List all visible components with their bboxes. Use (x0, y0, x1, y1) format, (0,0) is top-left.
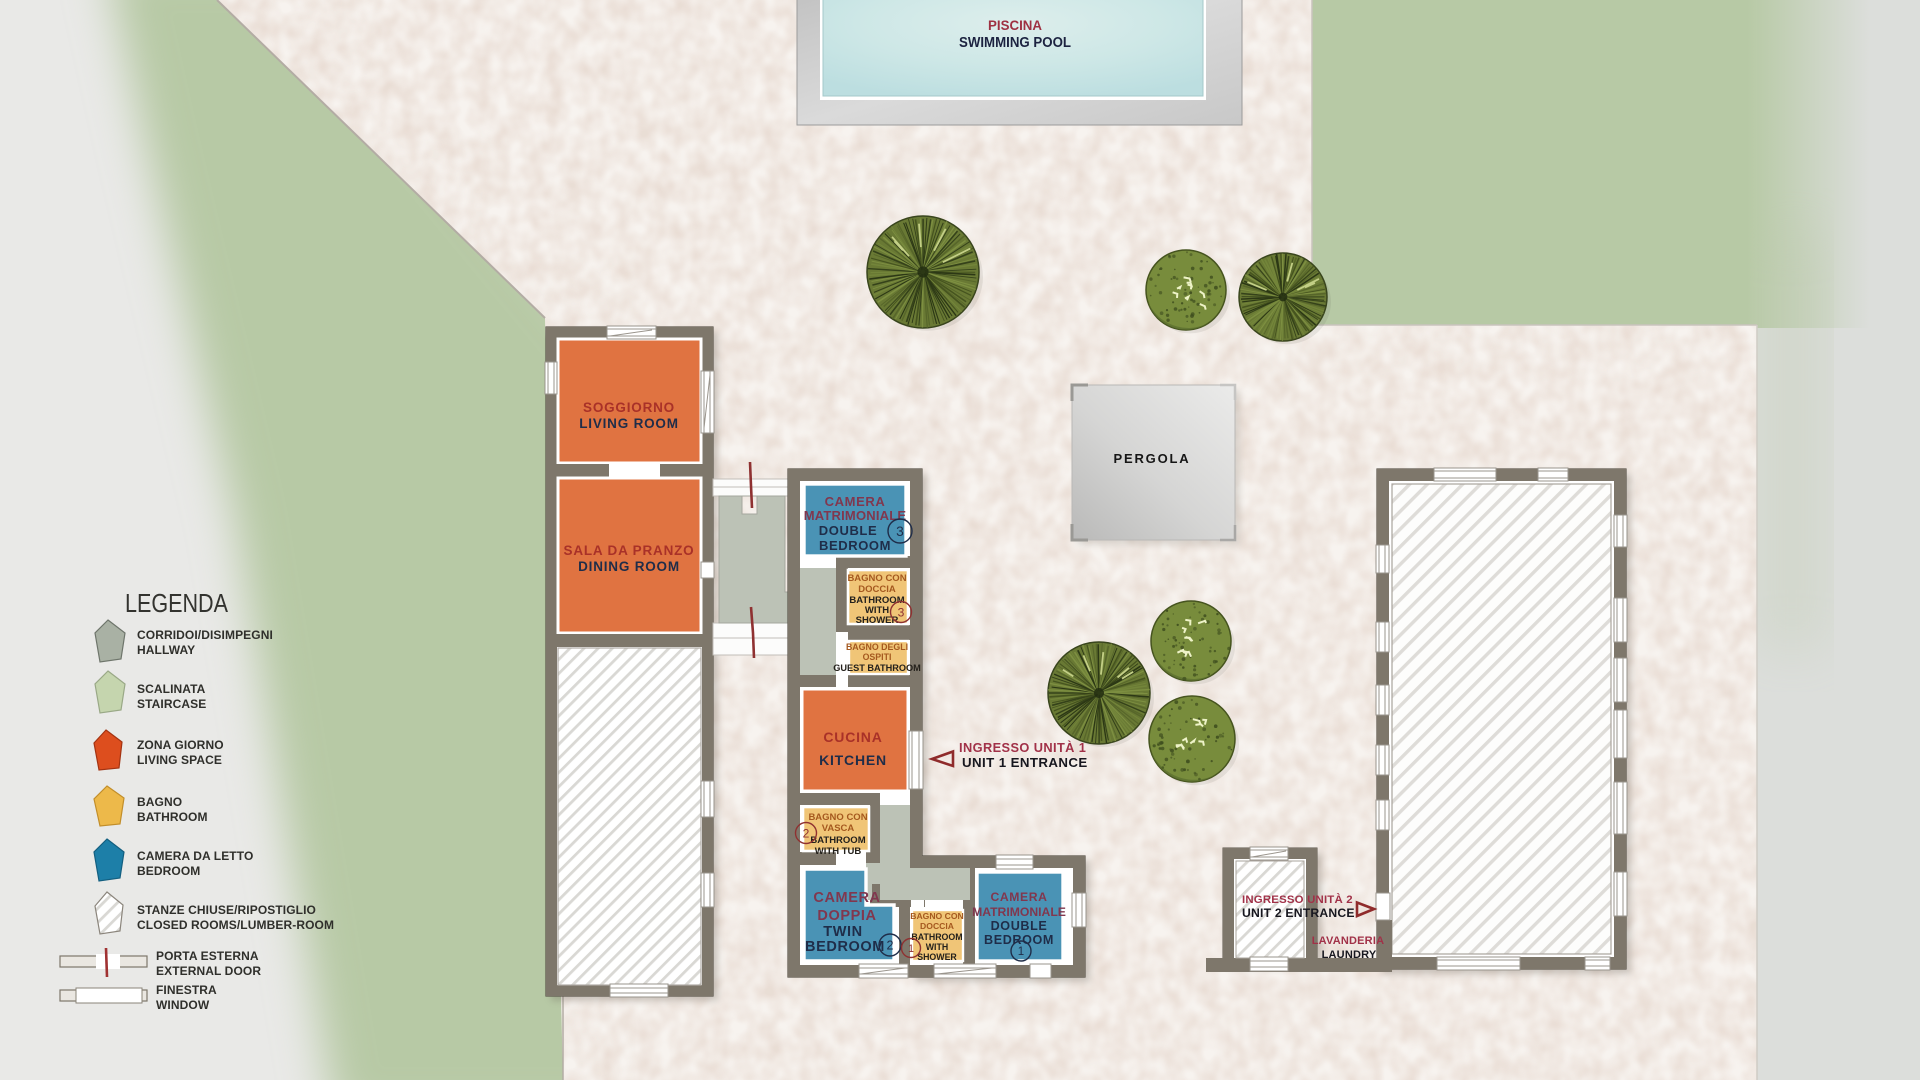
svg-text:HALLWAY: HALLWAY (137, 643, 195, 657)
svg-text:LAUNDRY: LAUNDRY (1322, 949, 1377, 961)
svg-text:CAMERA: CAMERA (813, 890, 880, 906)
svg-text:DOCCIA: DOCCIA (920, 921, 954, 931)
svg-text:KITCHEN: KITCHEN (819, 752, 887, 768)
svg-text:WINDOW: WINDOW (156, 998, 210, 1012)
svg-text:3: 3 (896, 524, 904, 539)
svg-text:BAGNO CON: BAGNO CON (910, 911, 963, 921)
svg-text:STAIRCASE: STAIRCASE (137, 697, 206, 711)
svg-text:GUEST BATHROOM: GUEST BATHROOM (833, 663, 921, 673)
svg-text:BEDROOM: BEDROOM (819, 538, 891, 553)
svg-text:DOPPIA: DOPPIA (817, 908, 876, 924)
svg-text:1: 1 (908, 943, 914, 955)
svg-text:TWIN: TWIN (823, 924, 862, 940)
svg-text:CAMERA: CAMERA (990, 890, 1047, 904)
svg-text:LIVING SPACE: LIVING SPACE (137, 753, 222, 767)
svg-text:LAVANDERIA: LAVANDERIA (1312, 935, 1384, 947)
svg-text:CAMERA: CAMERA (825, 494, 886, 509)
svg-text:LIVING ROOM: LIVING ROOM (579, 416, 679, 431)
svg-text:MATRIMONIALE: MATRIMONIALE (972, 905, 1066, 919)
svg-text:BATHROOM: BATHROOM (137, 810, 208, 824)
svg-text:PISCINA: PISCINA (988, 18, 1042, 33)
svg-text:CORRIDOI/DISIMPEGNI: CORRIDOI/DISIMPEGNI (137, 628, 273, 642)
svg-text:BATHROOM: BATHROOM (810, 835, 865, 846)
svg-text:SCALINATA: SCALINATA (137, 682, 206, 696)
svg-text:DOUBLE: DOUBLE (991, 919, 1048, 933)
svg-text:BEDROOM: BEDROOM (984, 933, 1054, 947)
svg-text:SOGGIORNO: SOGGIORNO (583, 400, 675, 415)
svg-text:BAGNO: BAGNO (137, 795, 182, 809)
svg-text:BATHROOM: BATHROOM (911, 932, 962, 942)
svg-text:CUCINA: CUCINA (823, 729, 882, 745)
svg-text:INGRESSO UNITÀ 1: INGRESSO UNITÀ 1 (959, 740, 1086, 755)
svg-text:ZONA GIORNO: ZONA GIORNO (137, 738, 224, 752)
svg-text:PORTA ESTERNA: PORTA ESTERNA (156, 949, 259, 963)
svg-text:SALA DA PRANZO: SALA DA PRANZO (564, 543, 695, 558)
svg-text:INGRESSO UNITÀ 2: INGRESSO UNITÀ 2 (1242, 893, 1353, 906)
svg-text:2: 2 (803, 826, 810, 840)
svg-text:FINESTRA: FINESTRA (156, 983, 217, 997)
svg-text:UNIT 1 ENTRANCE: UNIT 1 ENTRANCE (962, 755, 1088, 770)
svg-text:2: 2 (886, 939, 893, 953)
svg-text:VASCA: VASCA (822, 823, 855, 834)
svg-text:DINING ROOM: DINING ROOM (578, 559, 680, 574)
svg-text:MATRIMONIALE: MATRIMONIALE (804, 508, 907, 523)
svg-text:BAGNO DEGLI: BAGNO DEGLI (846, 642, 908, 652)
svg-text:BAGNO CON: BAGNO CON (847, 573, 906, 584)
svg-text:EXTERNAL DOOR: EXTERNAL DOOR (156, 964, 261, 978)
svg-text:DOCCIA: DOCCIA (858, 584, 896, 595)
svg-text:BEDROOM: BEDROOM (805, 939, 885, 955)
svg-text:OSPITI: OSPITI (863, 652, 892, 662)
svg-text:1: 1 (1018, 946, 1024, 958)
svg-text:UNIT 2 ENTRANCE: UNIT 2 ENTRANCE (1242, 906, 1355, 920)
svg-text:SWIMMING POOL: SWIMMING POOL (959, 35, 1071, 51)
svg-text:CAMERA DA LETTO: CAMERA DA LETTO (137, 849, 253, 863)
svg-text:PERGOLA: PERGOLA (1114, 451, 1191, 466)
svg-text:CLOSED ROOMS/LUMBER-ROOM: CLOSED ROOMS/LUMBER-ROOM (137, 918, 334, 932)
svg-text:STANZE CHIUSE/RIPOSTIGLIO: STANZE CHIUSE/RIPOSTIGLIO (137, 903, 316, 917)
svg-text:LEGENDA: LEGENDA (125, 588, 229, 618)
svg-text:3: 3 (898, 605, 905, 619)
svg-text:DOUBLE: DOUBLE (819, 523, 878, 538)
svg-text:WITH: WITH (926, 942, 948, 952)
svg-text:WITH TUB: WITH TUB (815, 846, 862, 857)
svg-text:BEDROOM: BEDROOM (137, 864, 200, 878)
svg-text:SHOWER: SHOWER (917, 952, 957, 962)
svg-text:BAGNO CON: BAGNO CON (808, 812, 867, 823)
